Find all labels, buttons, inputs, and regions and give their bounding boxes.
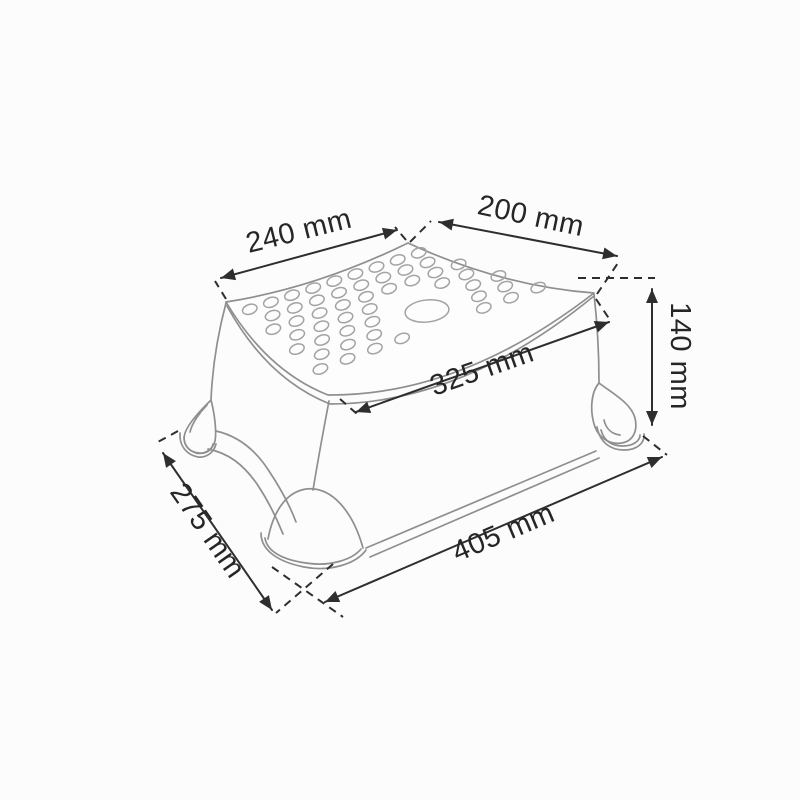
side-arch-cutout <box>208 431 296 534</box>
dim-label-200: 200 mm <box>475 189 587 243</box>
front-right-foot <box>592 383 644 450</box>
technical-drawing: 240 mm 200 mm 140 mm 325 mm 405 mm 275 m… <box>0 0 800 800</box>
back-left-foot <box>180 400 216 457</box>
dimension-base-left-edge: 275 mm <box>156 431 333 613</box>
dim-label-405: 405 mm <box>448 497 560 569</box>
right-corner-ridge <box>594 294 599 383</box>
step-stool-drawing <box>180 243 644 568</box>
front-corner-ridge <box>313 401 329 490</box>
dim-label-275: 275 mm <box>163 478 251 585</box>
dimension-base-front-edge: 405 mm <box>272 436 667 617</box>
left-corner-ridge <box>211 303 226 400</box>
diagram-canvas: 240 mm 200 mm 140 mm 325 mm 405 mm 275 m… <box>0 0 800 800</box>
dim-label-140: 140 mm <box>664 302 696 410</box>
front-foot <box>261 489 366 569</box>
dim-label-240: 240 mm <box>243 203 355 260</box>
